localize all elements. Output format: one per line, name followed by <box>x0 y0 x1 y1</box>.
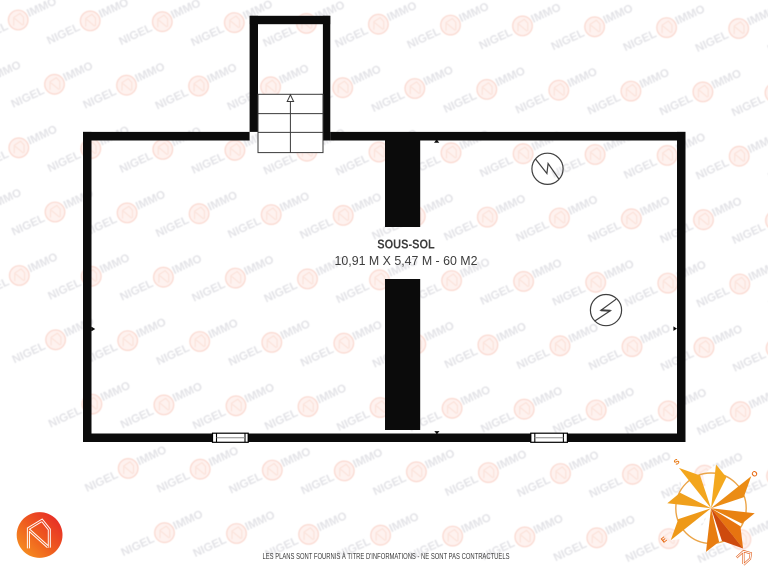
svg-text:S: S <box>672 457 682 467</box>
svg-text:SOUS-SOL: SOUS-SOL <box>377 237 435 252</box>
svg-text:O: O <box>750 468 760 479</box>
svg-text:10,91 M X 5,47 M - 60 M2: 10,91 M X 5,47 M - 60 M2 <box>335 253 478 268</box>
svg-text:LES PLANS SONT FOURNIS À TITRE: LES PLANS SONT FOURNIS À TITRE D'INFORMA… <box>263 552 510 561</box>
